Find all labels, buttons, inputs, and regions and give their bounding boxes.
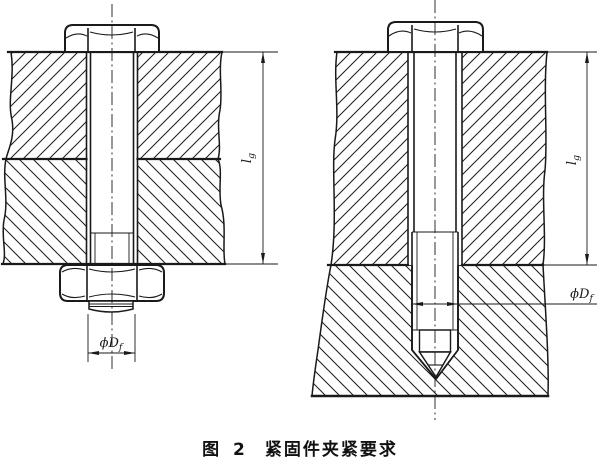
figure-2-drawing: lg ϕDf [0,0,600,465]
thread-diameter-sub: f [118,342,124,353]
thread-diameter-phi: ϕ [570,287,579,302]
figure-caption: 图 2紧固件夹紧要求 [0,435,600,460]
grip-length-sub: g [571,155,582,161]
thread-diameter-sub: f [588,293,594,304]
grip-length-sub: g [246,153,257,159]
left-grip-length-label: lg [240,153,257,163]
right-grip-length-label: lg [565,155,582,165]
figure-number: 图 2 [202,440,249,460]
thread-diameter-main: D [107,336,119,351]
left-bolted-joint: lg ϕDf [2,4,278,370]
left-dimension-thread-diameter: ϕDf [88,314,135,362]
right-hex-head [388,22,483,52]
right-thread-diameter-label: ϕDf [570,287,594,304]
left-thread-protrusion [89,301,133,312]
page: { "figure": { "caption": { "prefix": "图 … [0,0,600,465]
right-dimension-grip-length: lg [543,52,597,265]
thread-diameter-main: D [578,287,590,302]
right-bolted-joint: lg ϕDf [312,0,597,420]
left-dimension-grip-length: lg [222,52,278,264]
figure-title: 紧固件夹紧要求 [265,440,398,460]
left-thread-diameter-label: ϕDf [100,336,124,353]
thread-diameter-phi: ϕ [100,336,109,351]
